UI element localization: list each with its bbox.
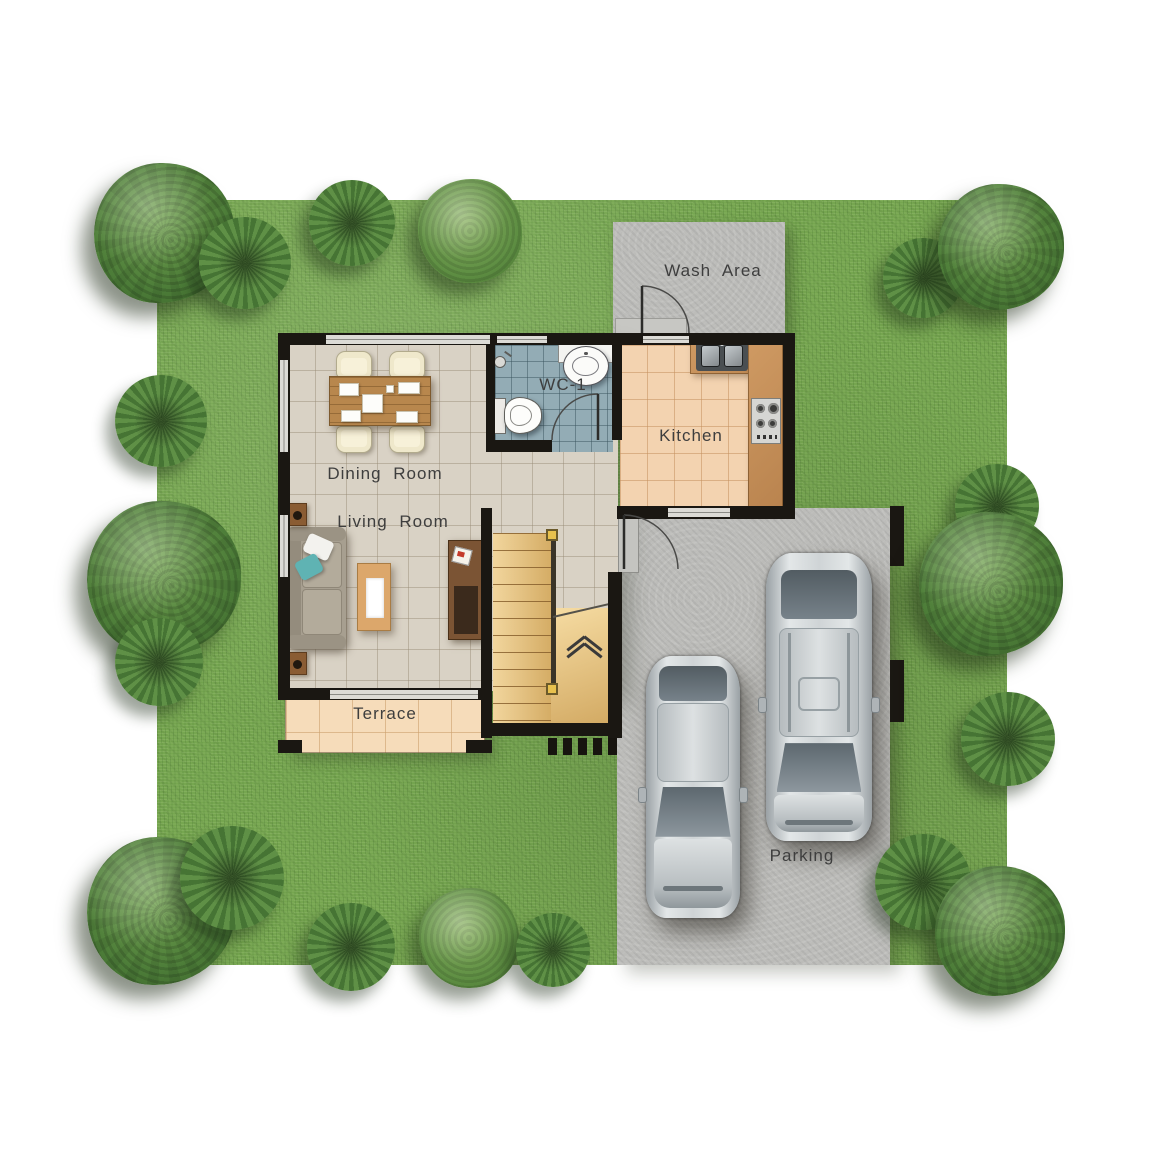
stove-burner	[756, 404, 765, 413]
kitchen-label: Kitchen	[659, 426, 723, 446]
sliding-door	[330, 690, 478, 699]
living-room-label: Living Room	[337, 512, 449, 532]
sofa-armrest	[286, 635, 346, 649]
basin-inner	[572, 356, 599, 376]
terrace-wall-stub	[278, 740, 302, 753]
window	[326, 335, 490, 344]
window	[280, 360, 288, 452]
parking-label: Parking	[770, 846, 835, 866]
place-setting	[398, 382, 420, 394]
window	[280, 515, 288, 577]
wash-area-door	[640, 284, 692, 336]
wc-label: WC-1	[539, 375, 586, 395]
floor-plan-canvas: Wash Area WC-1 Kitchen Dining Room Livin…	[0, 0, 1167, 1167]
car-sedan	[646, 656, 740, 918]
wall	[783, 345, 795, 519]
shower-head-icon	[494, 356, 506, 368]
car-mirror	[739, 787, 748, 803]
stove-knobs	[757, 435, 777, 439]
car-mirror	[871, 697, 880, 713]
dining-chair	[389, 426, 425, 453]
window	[497, 336, 547, 343]
magazine	[451, 546, 472, 566]
dining-table	[329, 376, 431, 426]
car-rear-window	[781, 570, 857, 619]
basin-drain	[584, 352, 588, 355]
car-roof	[657, 703, 728, 782]
sofa-cushion	[302, 589, 342, 635]
sink-basin	[701, 345, 720, 367]
staircase-flight	[493, 533, 551, 723]
terrace-wall-stub	[466, 740, 492, 753]
car-windshield	[655, 787, 730, 837]
place-setting	[396, 411, 418, 423]
car-mirror	[758, 697, 767, 713]
stove-burner	[768, 403, 779, 414]
boundary-wall-post	[890, 506, 904, 566]
stove-burner	[768, 419, 777, 428]
staircase-landing	[551, 608, 612, 723]
toilet	[492, 396, 544, 436]
car-hood	[654, 839, 733, 907]
dining-room-label: Dining Room	[327, 464, 442, 484]
centerpiece	[362, 394, 383, 413]
window	[643, 336, 689, 343]
car-mirror	[638, 787, 647, 803]
boundary-wall-post	[890, 660, 904, 722]
coffee-table	[357, 563, 391, 631]
stair-newel-post	[546, 683, 558, 695]
place-setting	[339, 383, 359, 396]
wall	[608, 572, 622, 738]
wall	[486, 440, 552, 452]
stair-railing	[551, 536, 556, 688]
dining-chair	[336, 351, 372, 378]
stair-newel-post	[546, 529, 558, 541]
speaker	[287, 652, 307, 675]
dining-chair	[336, 426, 372, 453]
wall	[612, 345, 622, 440]
wall	[486, 345, 495, 452]
stair-bottom-grate	[548, 738, 618, 755]
stove-burner	[756, 419, 765, 428]
cup	[386, 385, 394, 393]
car-rear-window	[659, 666, 727, 700]
car-suv	[766, 553, 872, 841]
entrance-door	[622, 513, 680, 571]
car-sunroof	[798, 677, 840, 712]
tv-console	[448, 540, 482, 640]
wall	[481, 723, 618, 736]
gas-stove	[751, 398, 781, 444]
terrace-label: Terrace	[353, 704, 417, 724]
dining-chair	[389, 351, 425, 378]
speaker	[287, 503, 307, 526]
wash-area-label: Wash Area	[664, 261, 762, 281]
place-setting	[341, 410, 361, 422]
wall	[481, 508, 492, 738]
car-windshield	[777, 743, 862, 792]
wc-door	[550, 392, 600, 442]
tv-screen	[454, 586, 478, 634]
car-hood	[774, 795, 863, 832]
coffee-table-top	[366, 578, 384, 618]
kitchen-sink	[696, 341, 748, 371]
sink-basin	[724, 345, 743, 367]
